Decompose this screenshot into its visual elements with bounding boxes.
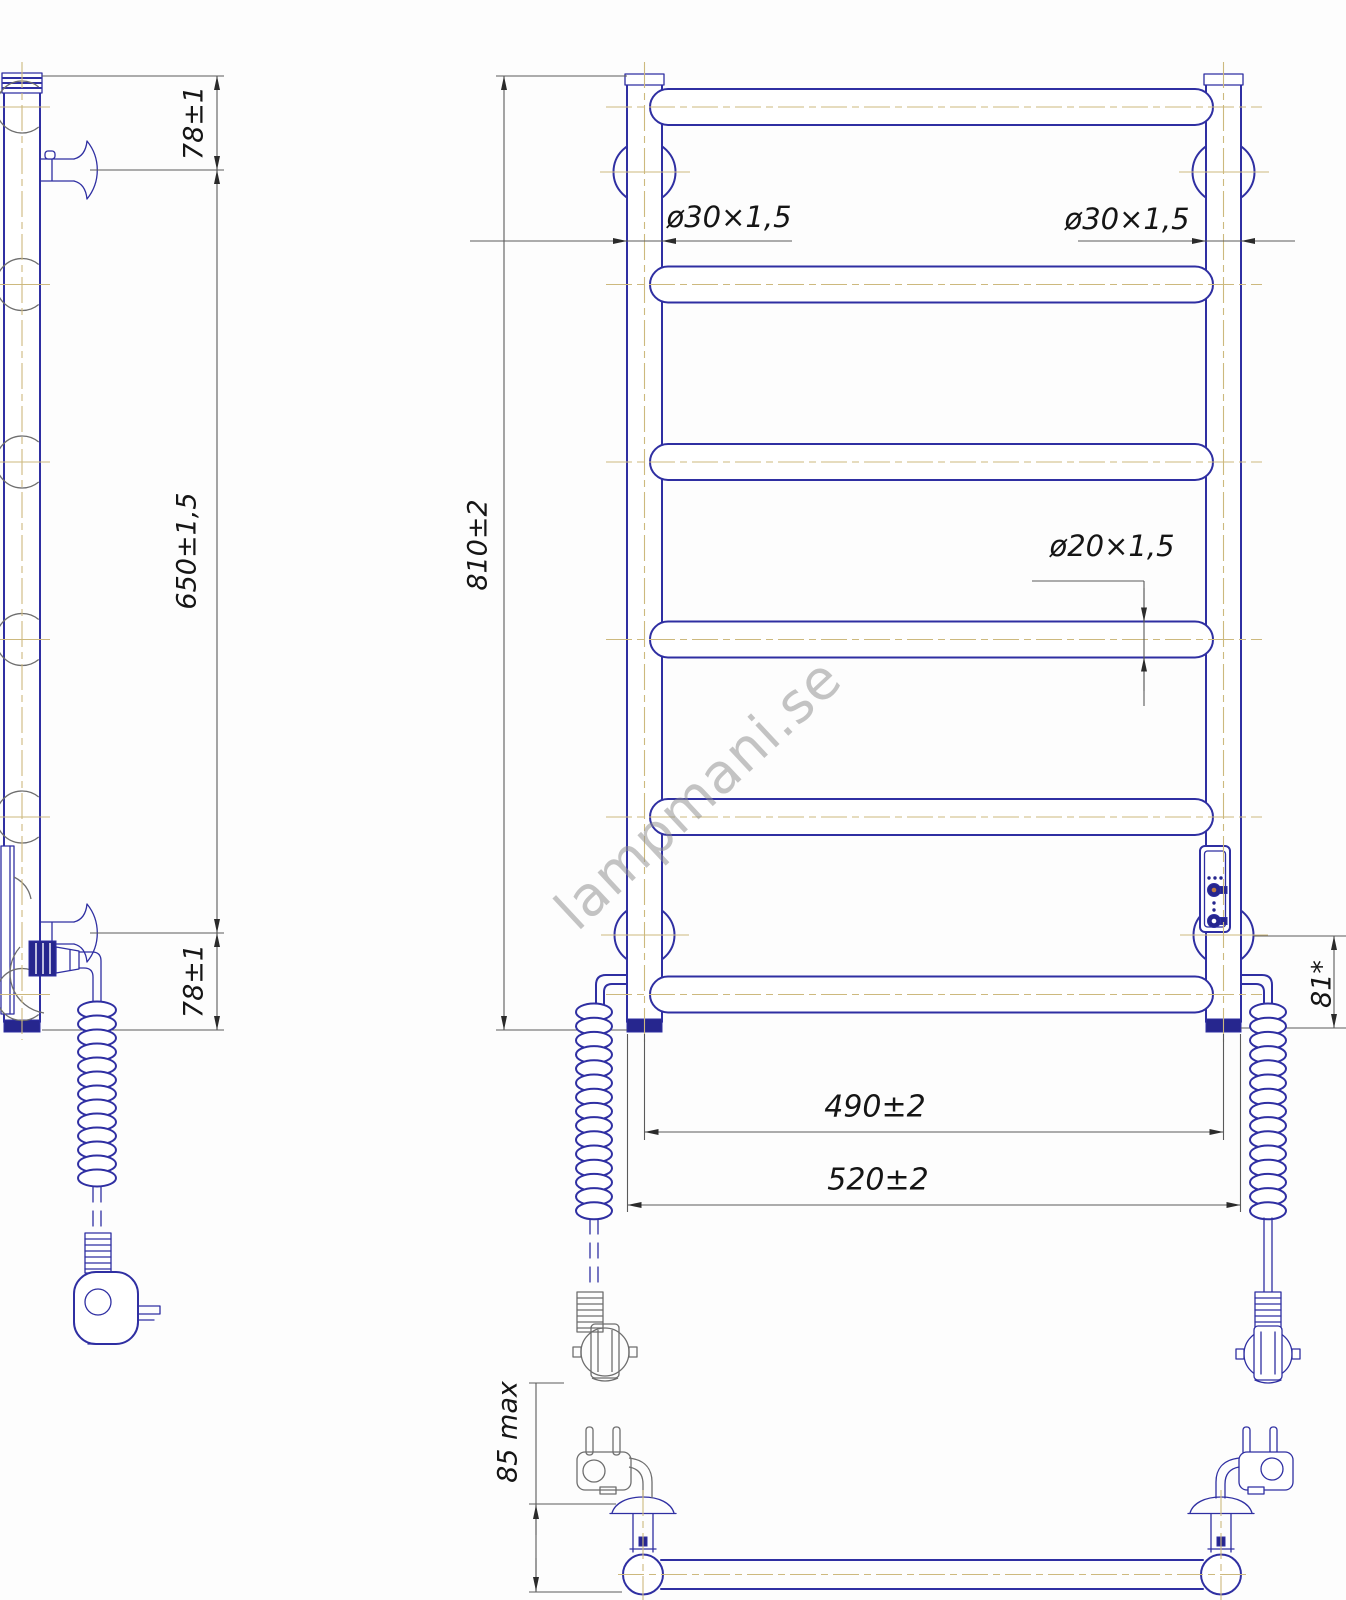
dim-label-lower-rung-offset: 81* — [1307, 960, 1338, 1008]
dim-label-mount-spacing: 490±2 — [824, 1090, 925, 1125]
side-view — [0, 73, 101, 1032]
dim-label-total-height: 810±2 — [463, 499, 494, 590]
dim-label-wall-clearance: 85 max — [493, 1380, 524, 1483]
bottom-view — [577, 1427, 1293, 1595]
side-cable-coil — [74, 1002, 160, 1345]
towel-rail-drawing: 78±1 650±1,5 78±1 810±2 ø30×1,5 ø30×1,5 … — [0, 0, 1346, 1600]
dim-label-top-offset: 78±1 — [179, 86, 210, 160]
bottom-right-plug — [1216, 1427, 1293, 1498]
wall-plate — [1, 846, 14, 1014]
controller-panel — [1200, 846, 1230, 932]
dim-label-bottom-offset: 78±1 — [179, 944, 210, 1018]
technical-drawing-canvas: 78±1 650±1,5 78±1 810±2 ø30×1,5 ø30×1,5 … — [0, 0, 1346, 1600]
dim-label-bracket-span: 650±1,5 — [172, 492, 203, 609]
dim-label-post-diameter-right: ø30×1,5 — [1063, 202, 1189, 236]
bottom-left-plug — [577, 1427, 652, 1498]
front-right-plug-end — [1236, 1326, 1300, 1383]
dim-label-post-diameter-left: ø30×1,5 — [665, 200, 791, 234]
left-cable-elbow — [596, 975, 627, 1008]
dim-label-rung-diameter: ø20×1,5 — [1048, 529, 1174, 563]
top-wall-bracket — [40, 141, 97, 199]
front-right-cable-coil — [1236, 1004, 1300, 1384]
side-power-plug — [74, 1272, 160, 1344]
dim-label-overall-width: 520±2 — [827, 1163, 928, 1198]
